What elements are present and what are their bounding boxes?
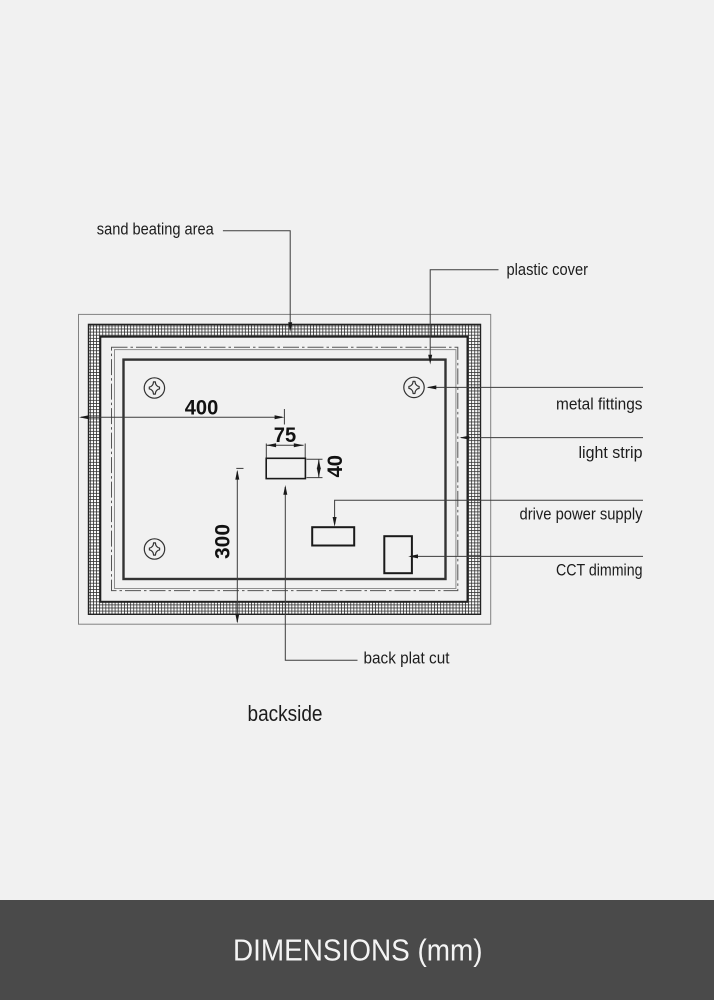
svg-text:300: 300 [212,524,235,559]
svg-text:back plat cut: back plat cut [364,649,450,668]
svg-text:light strip: light strip [579,443,643,462]
svg-text:sand beating area: sand beating area [97,219,214,238]
svg-text:backside: backside [248,701,323,726]
svg-text:DIMENSIONS (mm): DIMENSIONS (mm) [233,932,483,967]
svg-text:75: 75 [274,424,297,447]
svg-text:plastic cover: plastic cover [507,260,589,279]
svg-text:CCT dimming: CCT dimming [556,560,643,579]
svg-text:metal fittings: metal fittings [556,394,643,413]
svg-text:40: 40 [324,455,347,477]
svg-text:400: 400 [185,396,219,419]
svg-text:drive power supply: drive power supply [520,505,643,524]
